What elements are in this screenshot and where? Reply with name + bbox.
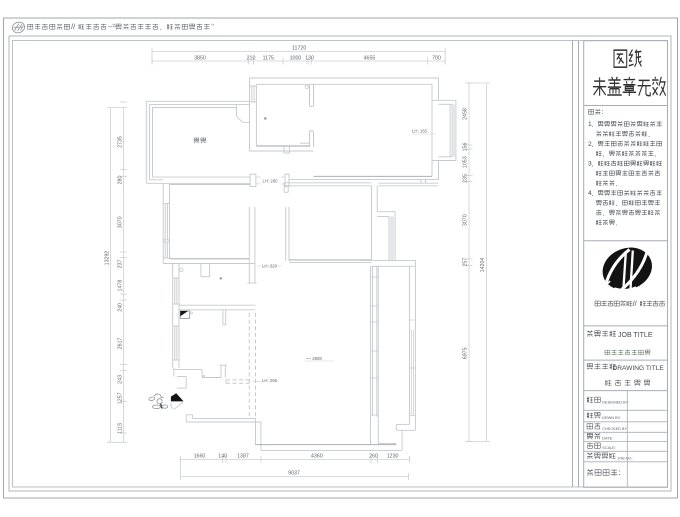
svg-text:13292: 13292 xyxy=(105,251,111,266)
svg-text:CHECKED BY:: CHECKED BY: xyxy=(602,427,628,431)
svg-text:3: 3 xyxy=(588,161,592,168)
svg-text:2: 2 xyxy=(588,141,592,148)
svg-text:DRWN BY:: DRWN BY: xyxy=(602,416,621,420)
svg-text:JOB TITLE: JOB TITLE xyxy=(618,332,653,339)
svg-text:2458: 2458 xyxy=(463,108,469,120)
svg-text:2735: 2735 xyxy=(118,136,124,148)
svg-text:1000: 1000 xyxy=(290,56,302,62)
svg-text:1115: 1115 xyxy=(118,423,124,434)
svg-text:1387: 1387 xyxy=(237,454,249,460)
svg-text:1478: 1478 xyxy=(118,280,124,292)
svg-text:140: 140 xyxy=(218,454,227,460)
svg-text:DRAWING TITLE: DRAWING TITLE xyxy=(613,365,665,372)
svg-text:1: 1 xyxy=(588,121,592,128)
svg-text:4360: 4360 xyxy=(311,454,323,460)
svg-text:156: 156 xyxy=(463,143,469,152)
svg-text:14204: 14204 xyxy=(480,258,486,273)
svg-text:260: 260 xyxy=(369,454,378,460)
svg-text:210: 210 xyxy=(247,56,256,62)
svg-text:4: 4 xyxy=(588,190,592,197)
svg-text:----: ---- xyxy=(108,22,118,31)
svg-text:DATE:: DATE: xyxy=(602,437,613,441)
svg-text:243: 243 xyxy=(118,375,124,384)
svg-text::: : xyxy=(619,468,621,477)
svg-text:1257: 1257 xyxy=(118,392,124,404)
svg-text:4655: 4655 xyxy=(364,56,376,62)
svg-text:1660: 1660 xyxy=(194,454,206,460)
svg-text:1175: 1175 xyxy=(263,56,274,62)
svg-text:3850: 3850 xyxy=(194,56,206,62)
svg-text:240: 240 xyxy=(118,303,124,312)
svg-text:280: 280 xyxy=(118,176,124,185)
svg-text:1053: 1053 xyxy=(463,156,469,168)
svg-text:LH: 165: LH: 165 xyxy=(412,129,428,134)
svg-text:6975: 6975 xyxy=(463,347,469,359)
svg-text:SCALE:: SCALE: xyxy=(602,446,616,450)
svg-text:11720: 11720 xyxy=(292,46,306,52)
svg-text:235: 235 xyxy=(463,174,469,183)
svg-text:3070: 3070 xyxy=(463,214,469,226)
svg-text:3070: 3070 xyxy=(118,216,124,228)
svg-text:700: 700 xyxy=(432,56,441,62)
svg-text:130: 130 xyxy=(305,56,314,62)
svg-text::: : xyxy=(602,109,604,116)
svg-text:1230: 1230 xyxy=(387,454,399,460)
svg-text:237: 237 xyxy=(118,260,124,269)
svg-text:LH: 280: LH: 280 xyxy=(263,178,279,183)
svg-text:2617: 2617 xyxy=(118,337,124,349)
svg-text:DESIGNED BY:: DESIGNED BY: xyxy=(602,400,629,404)
svg-text:JOB NO.:: JOB NO.: xyxy=(617,456,633,460)
svg-text:~~ 2808: ~~ 2808 xyxy=(306,356,322,361)
svg-text:257: 257 xyxy=(463,258,469,267)
svg-text:9037: 9037 xyxy=(288,471,300,477)
svg-text:LH: 266: LH: 266 xyxy=(262,378,278,383)
